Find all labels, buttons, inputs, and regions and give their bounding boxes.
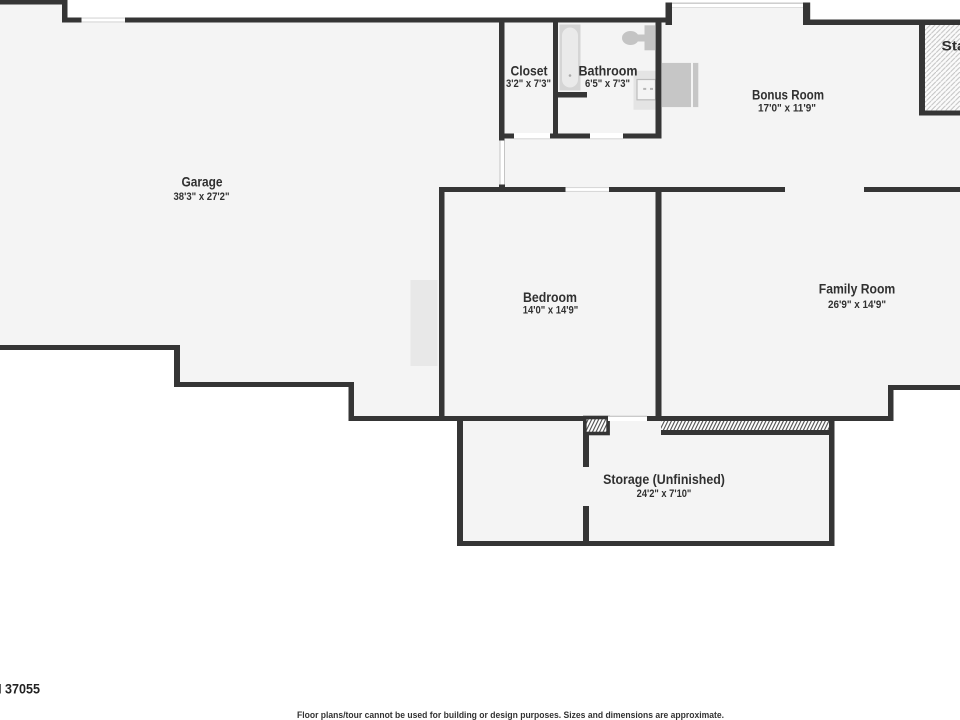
svg-text:Bedroom: Bedroom (523, 290, 577, 306)
svg-text:Storage (Unfinished): Storage (Unfinished) (603, 472, 725, 488)
svg-text:38'3" x 27'2": 38'3" x 27'2" (174, 191, 230, 203)
svg-text:N 37055: N 37055 (0, 681, 40, 696)
svg-text:Bonus Room: Bonus Room (752, 88, 824, 104)
svg-text:26'9" x 14'9": 26'9" x 14'9" (828, 299, 886, 311)
svg-text:6'5" x 7'3": 6'5" x 7'3" (585, 78, 630, 90)
svg-text:Bathroom: Bathroom (579, 63, 638, 79)
svg-text:17'0" x 11'9": 17'0" x 11'9" (758, 103, 816, 115)
svg-text:3'2" x 7'3": 3'2" x 7'3" (506, 78, 551, 90)
svg-text:Closet: Closet (511, 63, 548, 79)
svg-text:Stairs: Stairs (942, 38, 960, 54)
svg-text:Floor plans/tour cannot be use: Floor plans/tour cannot be used for buil… (297, 710, 724, 720)
svg-text:Family Room: Family Room (819, 282, 896, 298)
svg-text:Garage: Garage (182, 175, 223, 191)
svg-text:24'2" x 7'10": 24'2" x 7'10" (637, 488, 692, 500)
svg-text:14'0" x 14'9": 14'0" x 14'9" (523, 305, 579, 317)
